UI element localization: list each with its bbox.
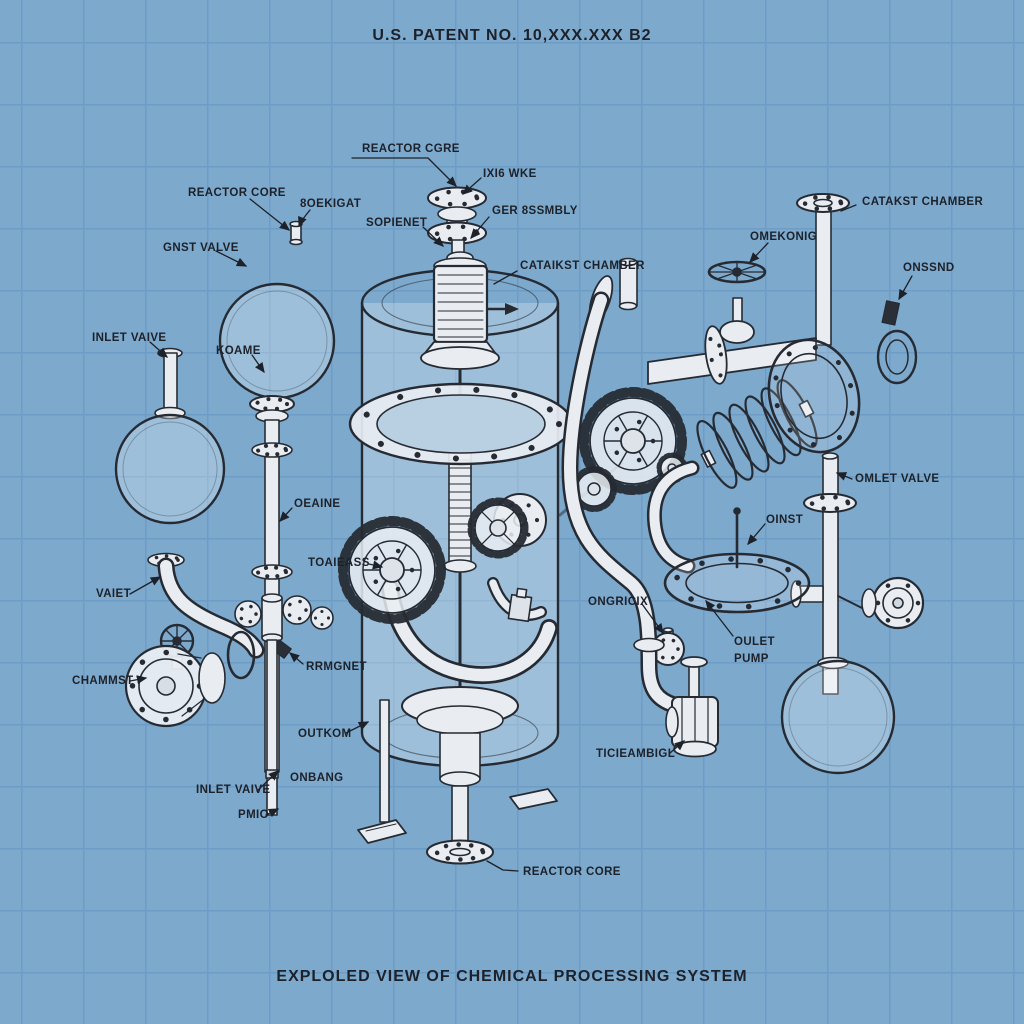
label-catakst-chamber-center: CATAIKST CHAMBER xyxy=(520,260,645,272)
gear-large-left xyxy=(343,521,441,619)
label-rrmgnet: RRMGNET xyxy=(306,661,367,673)
label-catakst-chamber-right: CATAKST CHAMBER xyxy=(862,196,983,208)
label-reactor-core-bottom: REACTOR CORE xyxy=(523,866,621,878)
label-ger-assembly: GER 8SSMBLY xyxy=(492,205,578,217)
inline-valve-body xyxy=(262,598,282,638)
label-omlet-valve: OMLET VALVE xyxy=(855,473,939,485)
blueprint-page: U.S. PATENT NO. 10,XXX.XXX B2 xyxy=(0,0,1024,1024)
label-inlet-valve-lower: INLET VAIVE xyxy=(196,784,270,796)
label-chammst: CHAMMST xyxy=(72,675,134,687)
sphere-vessel xyxy=(116,415,224,523)
label-ixi6-wke: IXI6 WKE xyxy=(483,168,537,180)
label-pmio: PMIO xyxy=(238,809,269,821)
inlet-pipe xyxy=(164,353,177,411)
patent-drawing: REACTOR CGRE IXI6 WKE GER 8SSMBLY SOPIEN… xyxy=(0,0,1024,1024)
duct-box xyxy=(508,595,531,622)
label-ongricix: ONGRICIX xyxy=(588,596,648,608)
label-ticieambigl: TICIEAMBIGL xyxy=(596,748,675,760)
lower-left-sphere-assembly xyxy=(116,349,256,651)
label-outkom: OUTKOM xyxy=(298,728,352,740)
label-reactor-core-left: REACTOR CORE xyxy=(188,187,286,199)
support-rod xyxy=(380,700,389,822)
seal-ring xyxy=(878,331,916,383)
pump-body xyxy=(199,653,225,703)
valve-body xyxy=(720,321,754,343)
motor-body xyxy=(434,266,487,342)
foot-plate xyxy=(358,820,406,843)
label-oulet-pump-line2: PUMP xyxy=(734,653,769,665)
base-plate xyxy=(510,789,557,809)
label-oulet-pump-line1: OULET xyxy=(734,636,775,648)
label-reactor-core-top: REACTOR CGRE xyxy=(362,143,460,155)
bottom-stem xyxy=(452,786,468,844)
label-onssnd: ONSSND xyxy=(903,262,955,274)
drawing-caption: EXPLOLED VIEW OF CHEMICAL PROCESSING SYS… xyxy=(0,968,1024,986)
label-sopienet: SOPIENET xyxy=(366,217,427,229)
label-onbang: ONBANG xyxy=(290,772,344,784)
label-vaiet: VAIET xyxy=(96,588,131,600)
vertical-pipe xyxy=(816,202,831,345)
sphere-vessel xyxy=(782,661,894,773)
label-oinst: OINST xyxy=(766,514,803,526)
gear-medium xyxy=(471,501,525,555)
sphere-vessel xyxy=(220,284,334,398)
label-omekonig: OMEKONIG xyxy=(750,231,817,243)
label-toaieass: TOAIEASS xyxy=(308,557,370,569)
bracket-fitting xyxy=(882,301,899,325)
label-oeaine: OEAINE xyxy=(294,498,341,510)
label-8oekigat: 8OEKIGAT xyxy=(300,198,361,210)
label-inlet-valve-upper: INLET VAIVE xyxy=(92,332,166,344)
label-koame: KOAME xyxy=(216,345,261,357)
label-gnst-valve: GNST VALVE xyxy=(163,242,239,254)
upper-left-sphere-assembly xyxy=(220,222,334,816)
